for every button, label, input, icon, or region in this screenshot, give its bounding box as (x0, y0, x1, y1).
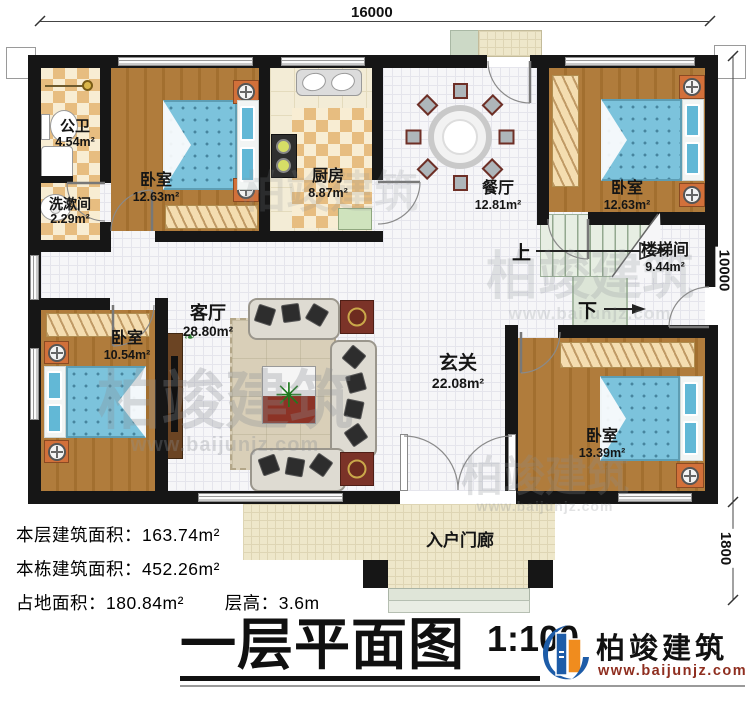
logo-brand: 柏竣建筑 (596, 625, 728, 667)
title-underline (180, 676, 540, 681)
room-area: 10.54m² (82, 348, 172, 362)
room-name: 洗漱间 (30, 196, 110, 212)
room-area: 13.39m² (556, 446, 648, 460)
room-label-foyer: 玄关 22.08m² (412, 353, 504, 391)
stair-up-label: 上 (512, 238, 531, 265)
room-label-washroom: 洗漱间 2.29m² (30, 196, 110, 226)
room-name: 厨房 (288, 168, 368, 186)
room-name: 客厅 (166, 303, 250, 324)
logo-window-dot (559, 651, 564, 653)
stat-value: 452.26m² (142, 559, 220, 579)
door-swing (548, 219, 588, 259)
room-name: 楼梯间 (624, 242, 706, 260)
room-name: 入户门廊 (395, 531, 525, 551)
dim-line-top (40, 21, 710, 22)
room-area: 12.63m² (110, 190, 202, 204)
room-name: 公卫 (42, 118, 108, 135)
room-label-bedroom-tr: 卧室 12.63m² (582, 180, 672, 213)
dim-top-label: 16000 (348, 4, 396, 21)
stat-label: 本栋建筑面积： (16, 559, 142, 579)
room-label-kitchen: 厨房 8.87m² (288, 168, 368, 201)
logo-building-blue (556, 633, 567, 675)
room-label-stairwell: 楼梯间 9.44m² (624, 242, 706, 275)
stair-down-arrowhead (632, 304, 646, 314)
room-area: 2.29m² (30, 212, 110, 226)
room-area: 12.81m² (458, 198, 538, 212)
room-name: 餐厅 (458, 180, 538, 198)
room-area: 8.87m² (288, 186, 368, 200)
stat-value: 163.74m² (142, 525, 220, 545)
door-swing (669, 287, 709, 327)
door-swing (378, 182, 420, 224)
door-swing (458, 436, 512, 490)
stat-building-area: 本栋建筑面积：452.26m² (16, 556, 320, 581)
room-label-bedroom-br: 卧室 13.39m² (556, 428, 648, 461)
logo-building-orange (568, 639, 581, 673)
logo-window-dot (559, 656, 564, 658)
room-area: 4.54m² (42, 135, 108, 149)
stat-label: 占地面积： (16, 593, 106, 613)
stat-value: 180.84m² (106, 593, 184, 613)
room-name: 玄关 (412, 353, 504, 375)
room-area: 28.80m² (166, 324, 250, 340)
room-name: 卧室 (556, 428, 648, 446)
logo-icon (538, 621, 594, 683)
room-label-living: 客厅 28.80m² (166, 303, 250, 339)
room-label-porch: 入户门廊 (395, 531, 525, 551)
room-name: 卧室 (82, 330, 172, 348)
dim-right-porch-label: 1800 (717, 529, 734, 568)
room-area: 12.63m² (582, 198, 672, 212)
stat-floor-area: 本层建筑面积：163.74m² (16, 522, 320, 547)
room-area: 22.08m² (412, 375, 504, 391)
stat-label: 本层建筑面积： (16, 525, 142, 545)
room-label-bedroom-bl: 卧室 10.54m² (82, 330, 172, 363)
room-area: 9.44m² (624, 260, 706, 274)
room-label-dining: 餐厅 12.81m² (458, 180, 538, 213)
room-label-public-bath: 公卫 4.54m² (42, 118, 108, 150)
page-title: 一层平面图 (180, 600, 465, 681)
room-name: 卧室 (582, 180, 672, 198)
room-name: 卧室 (110, 172, 202, 190)
logo-url: www.baijunjz.com (598, 663, 747, 679)
dim-right-main-label: 10000 (715, 247, 732, 295)
door-swing (521, 332, 560, 373)
door-swing (488, 61, 530, 103)
floor-plan-canvas: 16000 (0, 0, 750, 702)
door-swing (404, 436, 458, 490)
logo: 柏竣建筑 www.baijunjz.com (538, 615, 750, 693)
room-label-bedroom-tl: 卧室 12.63m² (110, 172, 202, 205)
stair-down-label: 下 (578, 296, 597, 323)
